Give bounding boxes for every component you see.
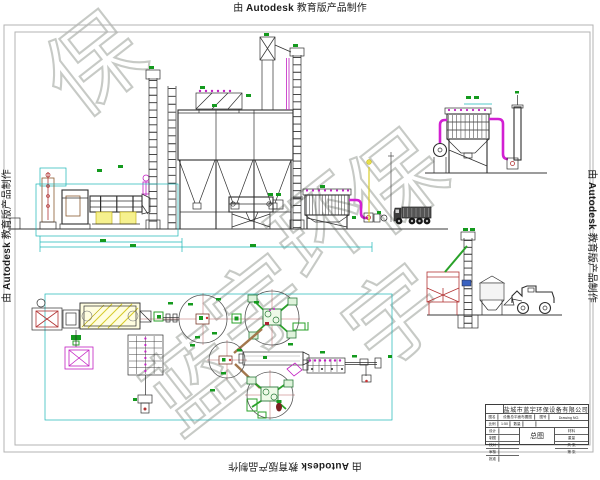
drawing-no-label: 图号 <box>538 414 550 419</box>
sign-row-label: 批准 <box>487 456 500 461</box>
drum-dryer <box>90 175 150 224</box>
watermark-char-partial: 保 <box>24 0 167 139</box>
autodesk-watermark-right: 由 Autodesk 教育版产品制作 <box>584 116 598 356</box>
wheel-loader <box>504 286 554 314</box>
autodesk-watermark-top: 由 Autodesk 教育版产品制作 <box>180 2 420 16</box>
dust-collector-detail-view <box>425 91 547 173</box>
qty-label: 数量 <box>512 421 524 426</box>
signature-rows: 设计 制图 校对 审核 批准 <box>486 428 520 445</box>
burner-assembly <box>143 175 149 196</box>
watermark-suffix: 教育版产品制作 <box>297 3 367 14</box>
autodesk-watermark-bottom: 由 Autodesk 教育版产品制作 <box>175 458 415 472</box>
title-block: 盐城市蓝宇环保设备有限公司 图名 设备总平面布置图 图号 Drawing NO.… <box>485 404 589 445</box>
conveyor-train <box>140 311 179 322</box>
sign-row-label: 校对 <box>487 442 500 447</box>
drawing-no-en: Drawing NO. <box>552 414 586 419</box>
drawing-title-center: 总图 <box>520 428 555 445</box>
drum-dryer-plan <box>80 303 140 329</box>
watermark-prefix: 由 <box>233 3 243 14</box>
sign-row-label: 设计 <box>487 428 500 433</box>
dump-truck <box>394 207 431 224</box>
furnace-plan <box>32 299 79 330</box>
drawing-name: 设备总平面布置图 <box>501 414 535 419</box>
drawing-name-label: 图名 <box>487 414 499 419</box>
cad-drawing-sheet: { "edge_watermark": { "prefix": "由", "br… <box>0 0 600 480</box>
scale-value: 1:50 <box>500 421 511 426</box>
watermark-brand: Autodesk <box>246 3 294 14</box>
sheet-info-rows: 材料 重量 共 张 第 张 <box>555 428 588 445</box>
discharge-hopper-plan <box>65 330 93 369</box>
stack <box>507 91 523 169</box>
scale-label: 比例 <box>487 421 499 426</box>
silo-ladder-mast <box>168 86 176 229</box>
oil-heater-tower <box>10 168 66 229</box>
autodesk-watermark-left: 由 Autodesk 教育版产品制作 <box>1 116 15 356</box>
sign-row-label: 制图 <box>487 435 500 440</box>
dryer-support-yellow <box>96 212 112 224</box>
furnace <box>60 190 90 229</box>
company-name: 盐城市蓝宇环保设备有限公司 <box>504 405 588 413</box>
small-silo <box>480 276 504 315</box>
dryer-support-yellow <box>120 212 136 224</box>
sign-row-label: 审核 <box>487 449 500 454</box>
title-block-blank-cell <box>486 405 504 413</box>
roller-unit-plan <box>303 358 345 373</box>
